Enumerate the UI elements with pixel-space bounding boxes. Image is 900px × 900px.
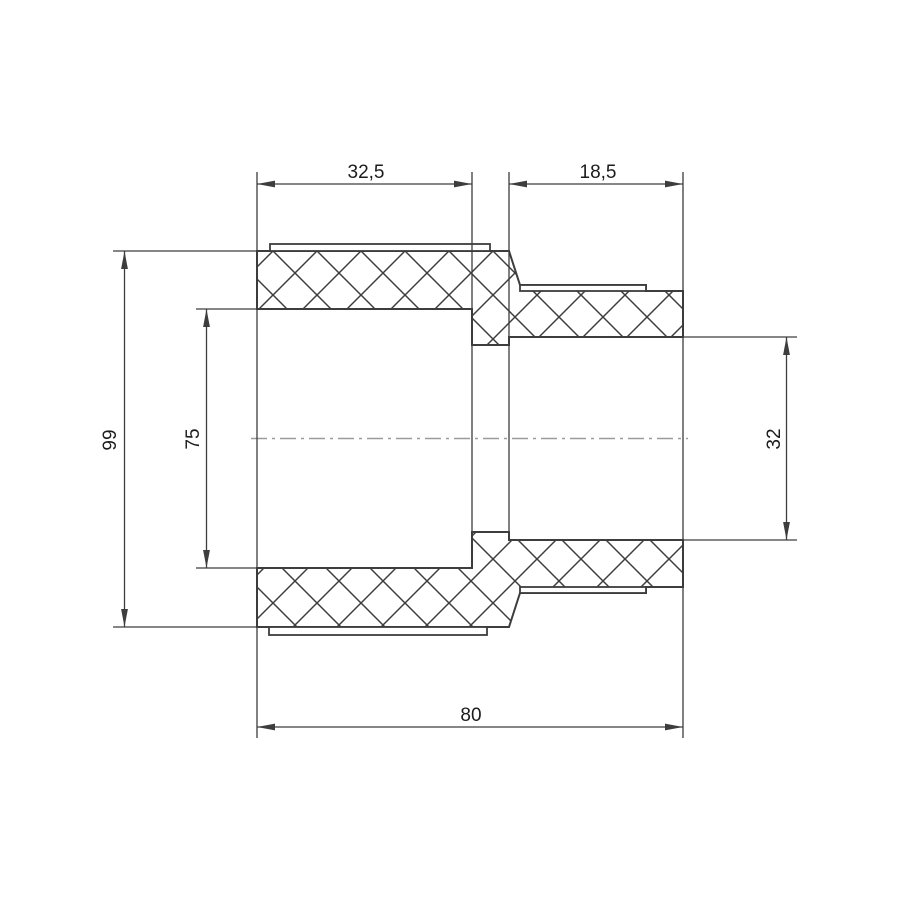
section-top-wall	[257, 251, 683, 345]
arrow-left-icon	[257, 724, 275, 731]
drawing-canvas: 32,5 18,5 99 75 32 80	[0, 0, 900, 900]
right-collar-ring-top	[520, 285, 646, 291]
arrow-up-icon	[203, 309, 210, 327]
arrow-down-icon	[121, 609, 128, 627]
dimension-label: 99	[100, 429, 121, 450]
left-collar-ring-bottom	[269, 627, 487, 635]
arrow-down-icon	[203, 550, 210, 568]
arrow-up-icon	[783, 337, 790, 355]
section-bottom-wall	[257, 532, 683, 627]
arrow-up-icon	[121, 251, 128, 269]
dimension-label: 32	[764, 428, 785, 449]
dimension-label: 32,5	[348, 162, 385, 183]
dimension-label: 18,5	[580, 162, 617, 183]
arrow-left-icon	[257, 181, 275, 188]
arrow-right-icon	[665, 724, 683, 731]
dimension-label: 80	[460, 705, 481, 726]
arrow-right-icon	[665, 181, 683, 188]
arrow-right-icon	[454, 181, 472, 188]
dimension-overall-length: 80	[257, 705, 683, 730]
dimension-label: 75	[183, 428, 204, 449]
dimension-left-inner-diameter: 75	[183, 309, 210, 568]
dimension-right-inner-diameter: 32	[764, 337, 790, 540]
technical-drawing: 32,5 18,5 99 75 32 80	[0, 0, 900, 900]
fitting-section	[257, 244, 683, 635]
dimension-left-socket-depth: 32,5	[257, 162, 472, 187]
left-collar-ring-top	[270, 244, 490, 251]
arrow-down-icon	[783, 522, 790, 540]
dimension-body-outer-diameter: 99	[100, 251, 128, 627]
arrow-left-icon	[509, 181, 527, 188]
dimension-right-socket-depth: 18,5	[509, 162, 683, 187]
right-collar-ring-bottom	[520, 587, 646, 593]
